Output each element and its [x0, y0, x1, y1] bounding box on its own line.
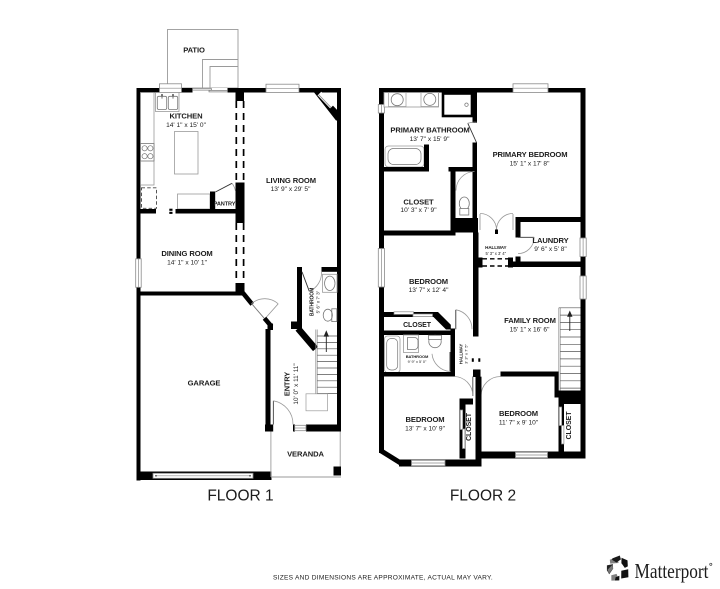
svg-text:PRIMARY BEDROOM: PRIMARY BEDROOM	[493, 150, 568, 159]
svg-text:FLOOR 1: FLOOR 1	[207, 488, 273, 505]
svg-text:LIVING ROOM: LIVING ROOM	[266, 176, 316, 185]
svg-text:Matterport: Matterport	[635, 559, 709, 583]
svg-text:PRIMARY BATHROOM: PRIMARY BATHROOM	[390, 126, 469, 135]
svg-text:15' 1" x 17' 8": 15' 1" x 17' 8"	[510, 161, 550, 168]
svg-text:FAMILY ROOM: FAMILY ROOM	[504, 316, 556, 325]
svg-text:9' 6" x 5' 8": 9' 6" x 5' 8"	[534, 246, 567, 253]
svg-text:CLOSET: CLOSET	[403, 197, 434, 206]
svg-text:PATIO: PATIO	[183, 46, 205, 55]
svg-text:VERANDA: VERANDA	[287, 449, 324, 458]
svg-text:CLOSET: CLOSET	[566, 411, 573, 440]
svg-text:14' 1" x 10' 1": 14' 1" x 10' 1"	[167, 260, 207, 267]
svg-text:5' 3" x 3' 4": 5' 3" x 3' 4"	[485, 251, 506, 256]
svg-text:PANTRY: PANTRY	[214, 201, 236, 207]
svg-text:9' 9" x 5' 0": 9' 9" x 5' 0"	[408, 360, 427, 364]
svg-text:5' 6" x 7' 3": 5' 6" x 7' 3"	[316, 290, 321, 313]
svg-text:15' 1" x 16' 6": 15' 1" x 16' 6"	[510, 326, 550, 333]
svg-text:FLOOR 2: FLOOR 2	[450, 488, 516, 505]
svg-text:13' 7" x 12' 4": 13' 7" x 12' 4"	[409, 287, 449, 294]
svg-text:BATHROOM: BATHROOM	[406, 354, 429, 359]
svg-text:SIZES AND DIMENSIONS ARE APPRO: SIZES AND DIMENSIONS ARE APPROXIMATE, AC…	[273, 575, 493, 582]
svg-text:ENTRY: ENTRY	[283, 372, 292, 396]
svg-text:HALLWAY: HALLWAY	[485, 245, 506, 250]
svg-text:KITCHEN: KITCHEN	[169, 112, 202, 121]
svg-text:GARAGE: GARAGE	[188, 378, 221, 387]
svg-text:10' 0" x 11' 11": 10' 0" x 11' 11"	[293, 363, 300, 404]
svg-text:CLOSET: CLOSET	[466, 412, 473, 441]
svg-text:14' 1" x 15' 0": 14' 1" x 15' 0"	[166, 122, 206, 129]
svg-text:CLOSET: CLOSET	[403, 322, 432, 329]
svg-text:13' 9" x 29' 5": 13' 9" x 29' 5"	[271, 186, 311, 193]
svg-text:13' 7" x 15' 9": 13' 7" x 15' 9"	[410, 136, 450, 143]
svg-text:10' 3" x 7' 9": 10' 3" x 7' 9"	[400, 207, 437, 214]
svg-text:13' 7" x 10' 9": 13' 7" x 10' 9"	[405, 425, 445, 432]
svg-text:LAUNDRY: LAUNDRY	[532, 236, 568, 245]
svg-text:BEDROOM: BEDROOM	[499, 409, 538, 418]
svg-text:DINING ROOM: DINING ROOM	[161, 249, 212, 258]
svg-text:11' 7" x 9' 10": 11' 7" x 9' 10"	[499, 419, 539, 426]
svg-text:BEDROOM: BEDROOM	[409, 277, 448, 286]
svg-text:BEDROOM: BEDROOM	[406, 415, 445, 424]
svg-text:3' 3" x 7' 5": 3' 3" x 7' 5"	[464, 344, 469, 364]
